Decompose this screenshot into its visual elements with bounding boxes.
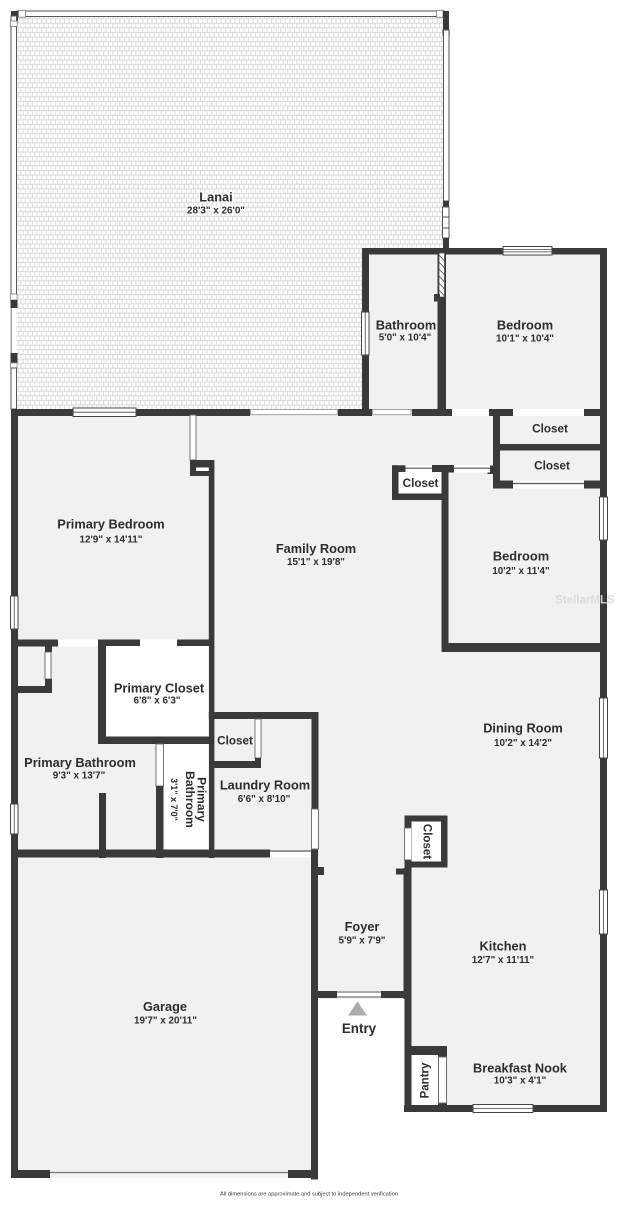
svg-text:StellarMLS: StellarMLS [555, 595, 615, 607]
svg-text:Pantry: Pantry [420, 1062, 432, 1098]
svg-text:Lanai: Lanai [199, 189, 232, 204]
svg-text:6'6" x 8'10": 6'6" x 8'10" [238, 794, 291, 805]
svg-text:5'9" x 7'9": 5'9" x 7'9" [338, 936, 385, 947]
svg-text:Closet: Closet [421, 824, 433, 859]
svg-text:Closet: Closet [534, 460, 570, 473]
svg-text:Foyer: Foyer [345, 919, 380, 934]
svg-text:6'8" x 6'3": 6'8" x 6'3" [133, 696, 180, 707]
svg-text:Kitchen: Kitchen [480, 939, 527, 954]
svg-text:Bathroom: Bathroom [376, 317, 436, 332]
svg-text:10'3" x 4'1": 10'3" x 4'1" [494, 1076, 547, 1087]
svg-text:Dining Room: Dining Room [483, 721, 563, 736]
svg-text:Breakfast Nook: Breakfast Nook [473, 1060, 568, 1075]
svg-text:Laundry Room: Laundry Room [220, 778, 310, 793]
svg-text:Primary Bathroom: Primary Bathroom [24, 755, 136, 770]
svg-text:Entry: Entry [342, 1021, 377, 1036]
svg-text:19'7" x 20'11": 19'7" x 20'11" [134, 1016, 197, 1027]
svg-text:Bedroom: Bedroom [493, 548, 549, 563]
svg-text:PrimaryBathroom3'1" x 7'0": PrimaryBathroom3'1" x 7'0" [169, 771, 209, 828]
svg-text:Closet: Closet [532, 423, 568, 436]
svg-text:10'2" x 11'4": 10'2" x 11'4" [492, 566, 550, 577]
svg-text:5'0" x 10'4": 5'0" x 10'4" [379, 333, 432, 344]
svg-text:Family Room: Family Room [276, 541, 356, 556]
svg-text:10'1" x 10'4": 10'1" x 10'4" [496, 334, 554, 345]
svg-text:9'3" x 13'7": 9'3" x 13'7" [53, 771, 106, 782]
svg-text:28'3" x 26'0": 28'3" x 26'0" [187, 206, 245, 217]
svg-text:Bedroom: Bedroom [497, 317, 553, 332]
svg-text:Closet: Closet [403, 477, 439, 490]
svg-text:15'1" x 19'8": 15'1" x 19'8" [287, 557, 345, 568]
svg-text:12'9" x 14'11": 12'9" x 14'11" [80, 535, 143, 546]
svg-text:All dimensions are approximate: All dimensions are approximate and subje… [220, 1191, 398, 1197]
svg-text:Closet: Closet [217, 735, 253, 748]
svg-text:Garage: Garage [143, 999, 187, 1014]
svg-text:10'2" x 14'2": 10'2" x 14'2" [494, 738, 552, 749]
svg-text:12'7" x 11'11": 12'7" x 11'11" [472, 955, 535, 966]
svg-text:Primary Bedroom: Primary Bedroom [57, 516, 164, 531]
svg-text:Primary Closet: Primary Closet [114, 680, 205, 695]
